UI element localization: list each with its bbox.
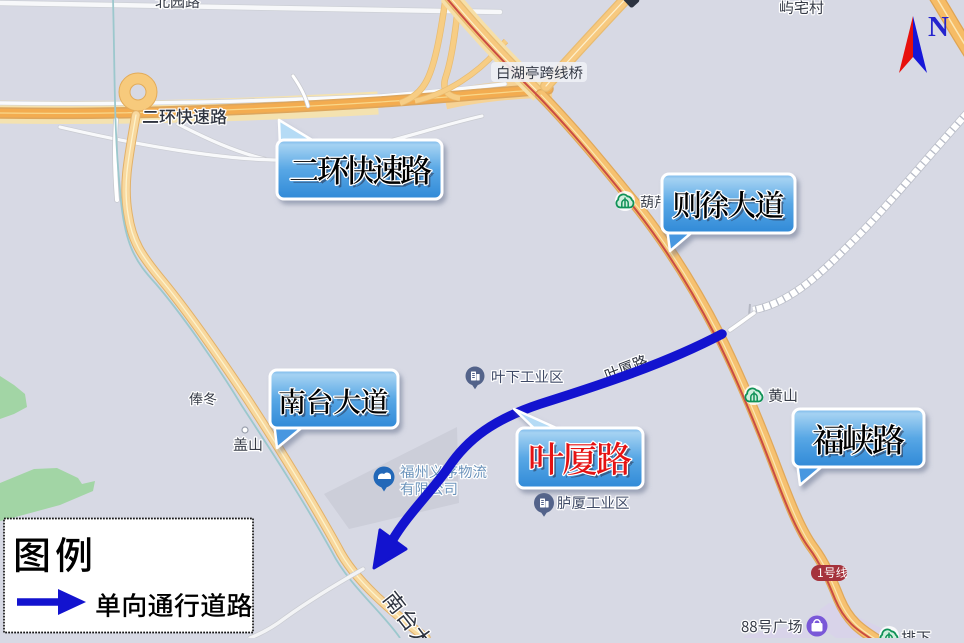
svg-text:N: N [928, 11, 949, 43]
